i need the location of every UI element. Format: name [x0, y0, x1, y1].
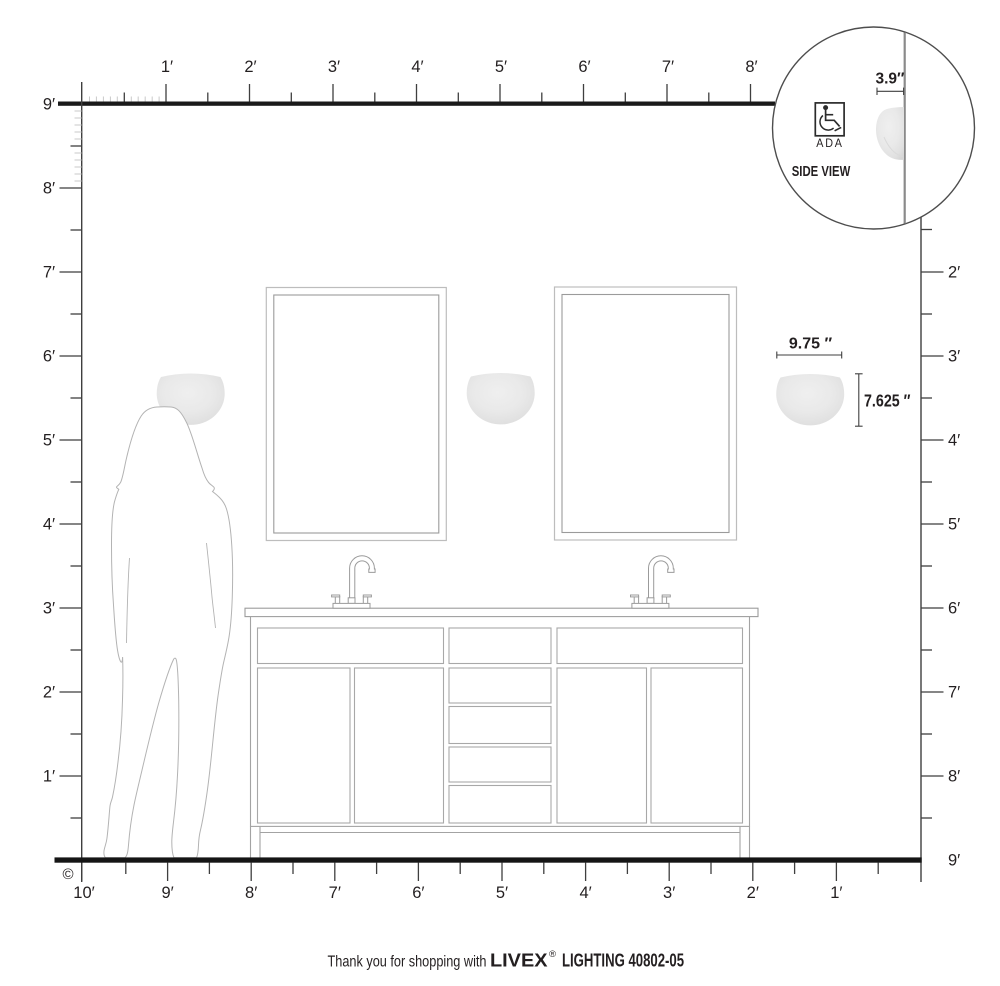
- svg-text:9.75 ″: 9.75 ″: [789, 336, 833, 353]
- svg-text:4′: 4′: [43, 516, 55, 534]
- svg-text:5′: 5′: [496, 884, 508, 902]
- svg-text:2′: 2′: [948, 264, 960, 282]
- svg-text:3.9″: 3.9″: [876, 71, 906, 88]
- svg-text:5′: 5′: [495, 58, 507, 76]
- svg-text:7.625 ″: 7.625 ″: [864, 391, 911, 411]
- svg-text:4′: 4′: [411, 58, 423, 76]
- svg-text:5′: 5′: [948, 516, 960, 534]
- svg-text:LIVEX: LIVEX: [490, 950, 548, 971]
- svg-text:9′: 9′: [161, 884, 173, 902]
- svg-text:®: ®: [549, 949, 556, 960]
- svg-text:3′: 3′: [948, 348, 960, 366]
- svg-text:8′: 8′: [245, 884, 257, 902]
- svg-text:7′: 7′: [948, 684, 960, 702]
- svg-text:8′: 8′: [948, 768, 960, 786]
- svg-text:Thank you for shopping with: Thank you for shopping with: [328, 954, 487, 971]
- svg-text:4′: 4′: [579, 884, 591, 902]
- svg-text:6′: 6′: [412, 884, 424, 902]
- svg-text:3′: 3′: [663, 884, 675, 902]
- svg-text:8′: 8′: [43, 180, 55, 198]
- svg-text:7′: 7′: [43, 264, 55, 282]
- svg-text:2′: 2′: [244, 58, 256, 76]
- svg-text:2′: 2′: [747, 884, 759, 902]
- svg-text:10′: 10′: [73, 884, 94, 902]
- svg-text:2′: 2′: [43, 684, 55, 702]
- svg-text:9′: 9′: [43, 96, 55, 114]
- svg-text:6′: 6′: [43, 348, 55, 366]
- svg-text:9′: 9′: [948, 852, 960, 870]
- svg-text:ADA: ADA: [816, 136, 844, 150]
- svg-text:1′: 1′: [161, 58, 173, 76]
- svg-text:1′: 1′: [43, 768, 55, 786]
- svg-text:LIGHTING 40802-05: LIGHTING 40802-05: [562, 950, 684, 971]
- svg-text:3′: 3′: [43, 600, 55, 618]
- svg-text:4′: 4′: [948, 432, 960, 450]
- svg-text:8′: 8′: [745, 58, 757, 76]
- svg-text:6′: 6′: [578, 58, 590, 76]
- svg-text:5′: 5′: [43, 432, 55, 450]
- svg-text:3′: 3′: [328, 58, 340, 76]
- svg-text:7′: 7′: [662, 58, 674, 76]
- svg-text:SIDE VIEW: SIDE VIEW: [792, 163, 851, 180]
- svg-text:7′: 7′: [329, 884, 341, 902]
- svg-text:6′: 6′: [948, 600, 960, 618]
- svg-text:1′: 1′: [830, 884, 842, 902]
- svg-text:©: ©: [62, 866, 73, 883]
